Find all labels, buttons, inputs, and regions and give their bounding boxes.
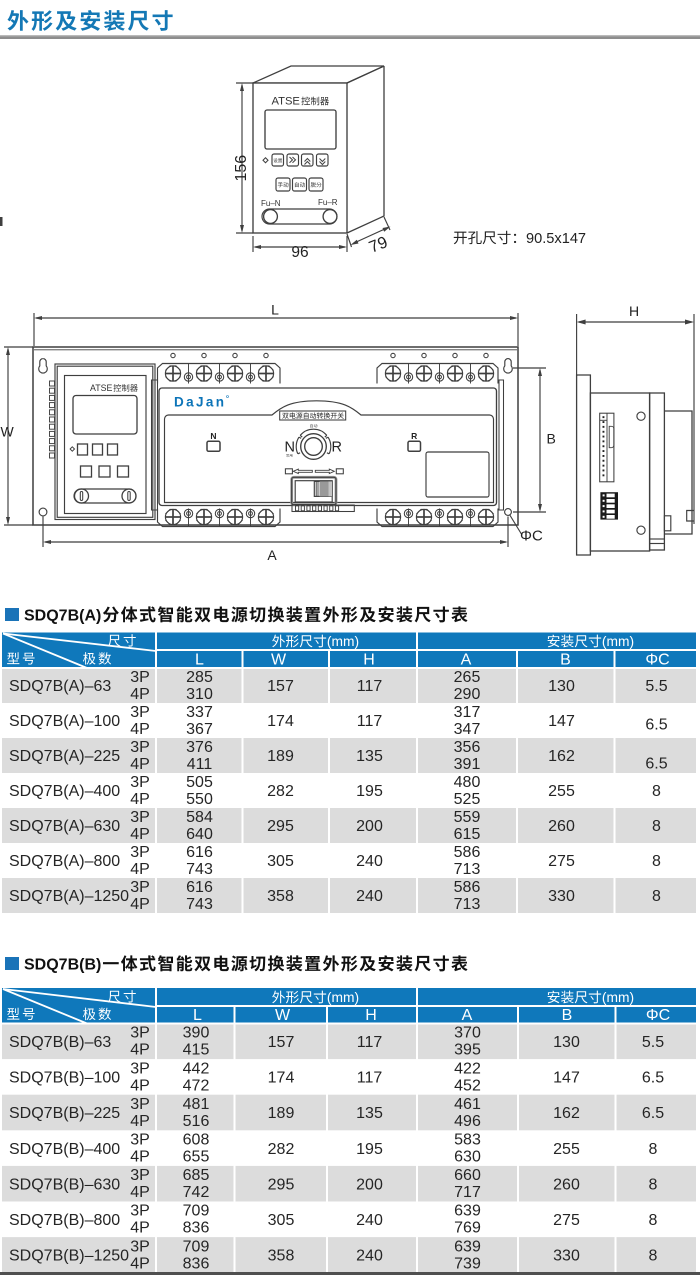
svg-text:255: 255 <box>548 783 575 800</box>
svg-text:616: 616 <box>186 844 213 861</box>
svg-text:4P: 4P <box>130 1255 150 1272</box>
svg-text:6.5: 6.5 <box>645 756 667 773</box>
svg-text:L: L <box>271 302 279 318</box>
svg-text:3P: 3P <box>130 1096 150 1113</box>
svg-text:157: 157 <box>267 678 294 695</box>
svg-text:584: 584 <box>186 809 213 826</box>
svg-text:608: 608 <box>183 1132 210 1149</box>
svg-text:B: B <box>562 1007 573 1024</box>
svg-text:4P: 4P <box>130 1113 150 1130</box>
svg-text:(mm): (mm) <box>327 634 359 649</box>
svg-text:6.5: 6.5 <box>642 1105 664 1122</box>
svg-text:SDQ7B(A)–225: SDQ7B(A)–225 <box>9 748 120 765</box>
svg-text:4P: 4P <box>130 896 150 913</box>
svg-text:586: 586 <box>454 844 481 861</box>
svg-text:W: W <box>1 424 15 440</box>
svg-text:516: 516 <box>183 1113 210 1130</box>
svg-text:415: 415 <box>183 1042 210 1059</box>
svg-text:SDQ7B(A)–800: SDQ7B(A)–800 <box>9 853 120 870</box>
svg-text:H: H <box>629 303 639 319</box>
svg-text:90.5x147: 90.5x147 <box>526 231 586 247</box>
svg-text:586: 586 <box>454 879 481 896</box>
svg-text:358: 358 <box>268 1248 295 1265</box>
svg-text:147: 147 <box>553 1070 580 1087</box>
svg-text:347: 347 <box>454 721 481 738</box>
svg-text:156: 156 <box>233 155 250 182</box>
svg-text:295: 295 <box>268 1176 295 1193</box>
svg-text:SDQ7B(B)–63: SDQ7B(B)–63 <box>9 1034 111 1051</box>
svg-text:135: 135 <box>356 1105 383 1122</box>
svg-text:DaJan: DaJan <box>174 395 224 410</box>
svg-text:4P: 4P <box>130 1184 150 1201</box>
svg-text:162: 162 <box>548 748 575 765</box>
svg-text:660: 660 <box>454 1167 481 1184</box>
svg-text:W: W <box>275 1007 291 1024</box>
svg-text:305: 305 <box>267 853 294 870</box>
svg-text:4P: 4P <box>130 721 150 738</box>
svg-text:275: 275 <box>548 853 575 870</box>
svg-text:8: 8 <box>649 1141 658 1158</box>
svg-text:422: 422 <box>454 1060 481 1077</box>
svg-text:SDQ7B(A)–630: SDQ7B(A)–630 <box>9 818 120 835</box>
svg-text:ATSE: ATSE <box>272 96 300 108</box>
svg-text:290: 290 <box>454 686 481 703</box>
svg-text:117: 117 <box>357 713 383 730</box>
svg-text:481: 481 <box>183 1096 210 1113</box>
svg-text:265: 265 <box>454 669 481 686</box>
svg-text:117: 117 <box>357 678 383 695</box>
svg-text:285: 285 <box>186 669 213 686</box>
svg-text:SDQ7B(B)–630: SDQ7B(B)–630 <box>9 1176 120 1193</box>
svg-text:3P: 3P <box>130 1167 150 1184</box>
svg-text:SDQ7B(A)–1250: SDQ7B(A)–1250 <box>9 888 129 905</box>
svg-text:240: 240 <box>356 853 383 870</box>
svg-text:SDQ7B(B): SDQ7B(B) <box>24 957 101 974</box>
svg-text:240: 240 <box>356 1248 383 1265</box>
svg-text:(mm): (mm) <box>602 990 634 1005</box>
svg-text:4P: 4P <box>130 791 150 808</box>
svg-text:189: 189 <box>268 1105 295 1122</box>
svg-text:174: 174 <box>267 713 294 730</box>
svg-text:4P: 4P <box>130 1077 150 1094</box>
svg-text:L: L <box>193 1007 202 1024</box>
svg-text:240: 240 <box>356 1212 383 1229</box>
svg-text:3P: 3P <box>130 774 150 791</box>
svg-text:717: 717 <box>454 1184 481 1201</box>
svg-text:742: 742 <box>183 1184 210 1201</box>
svg-text:130: 130 <box>548 678 575 695</box>
svg-text:317: 317 <box>454 704 481 721</box>
svg-text:305: 305 <box>268 1212 295 1229</box>
svg-text:W: W <box>271 652 287 669</box>
svg-text:4P: 4P <box>130 756 150 773</box>
svg-text:583: 583 <box>454 1132 481 1149</box>
svg-text:709: 709 <box>183 1238 210 1255</box>
svg-text:240: 240 <box>356 888 383 905</box>
svg-text:640: 640 <box>186 826 213 843</box>
svg-text:R: R <box>332 440 342 456</box>
svg-text:Fu–N: Fu–N <box>261 199 281 208</box>
svg-text:769: 769 <box>454 1220 481 1237</box>
svg-text:8: 8 <box>652 853 661 870</box>
svg-text:SDQ7B(B)–800: SDQ7B(B)–800 <box>9 1212 120 1229</box>
svg-text:A: A <box>462 1007 473 1024</box>
svg-text:525: 525 <box>454 791 481 808</box>
svg-text:200: 200 <box>356 1176 383 1193</box>
svg-text:550: 550 <box>186 791 213 808</box>
svg-text:(mm): (mm) <box>327 990 359 1005</box>
svg-text:195: 195 <box>356 783 383 800</box>
svg-text:R: R <box>411 431 417 441</box>
svg-text:3P: 3P <box>130 1203 150 1220</box>
svg-text:295: 295 <box>267 818 294 835</box>
svg-text:3P: 3P <box>130 704 150 721</box>
svg-text:260: 260 <box>548 818 575 835</box>
svg-text:SDQ7B(B)–225: SDQ7B(B)–225 <box>9 1105 120 1122</box>
svg-text:370: 370 <box>454 1025 481 1042</box>
svg-text:391: 391 <box>454 756 481 773</box>
svg-text:5.5: 5.5 <box>645 678 667 695</box>
svg-text:SDQ7B(B)–100: SDQ7B(B)–100 <box>9 1070 120 1087</box>
svg-text:130: 130 <box>553 1034 580 1051</box>
svg-text:496: 496 <box>454 1113 481 1130</box>
svg-text:472: 472 <box>183 1077 210 1094</box>
svg-text:ΦC: ΦC <box>520 528 543 545</box>
svg-text:836: 836 <box>183 1220 210 1237</box>
svg-text:117: 117 <box>357 1070 383 1087</box>
svg-text:743: 743 <box>186 896 213 913</box>
svg-text:4P: 4P <box>130 861 150 878</box>
svg-text:442: 442 <box>183 1060 210 1077</box>
svg-text:713: 713 <box>454 861 481 878</box>
svg-text:8: 8 <box>649 1176 658 1193</box>
svg-text:630: 630 <box>454 1149 481 1166</box>
svg-text:SDQ7B(B)–400: SDQ7B(B)–400 <box>9 1141 120 1158</box>
svg-text:3P: 3P <box>130 844 150 861</box>
svg-text:5.5: 5.5 <box>642 1034 664 1051</box>
svg-text:615: 615 <box>454 826 481 843</box>
svg-text:ΦC: ΦC <box>645 652 669 669</box>
svg-text:282: 282 <box>267 783 294 800</box>
svg-text:639: 639 <box>454 1203 481 1220</box>
svg-text:452: 452 <box>454 1077 481 1094</box>
svg-text:B: B <box>560 652 571 669</box>
svg-text:3P: 3P <box>130 1238 150 1255</box>
svg-text:390: 390 <box>183 1025 210 1042</box>
svg-text:157: 157 <box>268 1034 295 1051</box>
svg-text:SDQ7B(B)–1250: SDQ7B(B)–1250 <box>9 1248 129 1265</box>
svg-text:4P: 4P <box>130 686 150 703</box>
svg-text:330: 330 <box>553 1248 580 1265</box>
svg-text:282: 282 <box>268 1141 295 1158</box>
svg-text:559: 559 <box>454 809 481 826</box>
svg-text:3P: 3P <box>130 1132 150 1149</box>
svg-text:461: 461 <box>454 1096 481 1113</box>
svg-text:4P: 4P <box>130 1149 150 1166</box>
svg-text:8: 8 <box>652 888 661 905</box>
svg-text:6.5: 6.5 <box>642 1070 664 1087</box>
svg-text:189: 189 <box>267 748 294 765</box>
svg-text:Fu–R: Fu–R <box>318 198 338 207</box>
svg-text:162: 162 <box>553 1105 580 1122</box>
svg-text:SDQ7B(A)–400: SDQ7B(A)–400 <box>9 783 120 800</box>
svg-text:709: 709 <box>183 1203 210 1220</box>
svg-text:8: 8 <box>649 1248 658 1265</box>
svg-text:255: 255 <box>553 1141 580 1158</box>
svg-text:743: 743 <box>186 861 213 878</box>
svg-text:330: 330 <box>548 888 575 905</box>
svg-text:3P: 3P <box>130 1025 150 1042</box>
svg-text:8: 8 <box>652 783 661 800</box>
svg-text:135: 135 <box>356 748 383 765</box>
svg-text:6.5: 6.5 <box>645 717 667 734</box>
svg-text:79: 79 <box>366 233 390 257</box>
svg-text:367: 367 <box>186 721 213 738</box>
svg-text:3P: 3P <box>130 809 150 826</box>
svg-text:376: 376 <box>186 739 213 756</box>
svg-text:A: A <box>461 652 472 669</box>
svg-text:174: 174 <box>268 1070 295 1087</box>
svg-text:ΦC: ΦC <box>646 1007 670 1024</box>
svg-text:3P: 3P <box>130 739 150 756</box>
svg-text:L: L <box>195 652 204 669</box>
svg-text:B: B <box>547 431 556 447</box>
svg-text:337: 337 <box>186 704 213 721</box>
svg-text:8: 8 <box>652 818 661 835</box>
svg-text:N: N <box>210 431 216 441</box>
svg-text:SDQ7B(A): SDQ7B(A) <box>24 608 101 625</box>
svg-text:(mm): (mm) <box>602 634 634 649</box>
svg-text:147: 147 <box>548 713 575 730</box>
svg-text:836: 836 <box>183 1255 210 1272</box>
svg-text:356: 356 <box>454 739 481 756</box>
svg-text:117: 117 <box>357 1034 383 1051</box>
svg-text:358: 358 <box>267 888 294 905</box>
svg-text:639: 639 <box>454 1238 481 1255</box>
svg-text:ATSE: ATSE <box>90 383 112 393</box>
svg-text:4P: 4P <box>130 1220 150 1237</box>
svg-text:3P: 3P <box>130 1060 150 1077</box>
svg-text:310: 310 <box>186 686 213 703</box>
svg-text:N: N <box>285 440 295 456</box>
svg-text:4P: 4P <box>130 826 150 843</box>
svg-text:H: H <box>365 1007 377 1024</box>
svg-text:739: 739 <box>454 1255 481 1272</box>
svg-text:260: 260 <box>553 1176 580 1193</box>
svg-text:616: 616 <box>186 879 213 896</box>
svg-text:A: A <box>267 547 277 563</box>
svg-text:96: 96 <box>291 244 308 261</box>
svg-text:195: 195 <box>356 1141 383 1158</box>
svg-text:SDQ7B(A)–100: SDQ7B(A)–100 <box>9 713 120 730</box>
svg-text:713: 713 <box>454 896 481 913</box>
svg-text:395: 395 <box>454 1042 481 1059</box>
svg-text:411: 411 <box>187 756 213 773</box>
svg-text:655: 655 <box>183 1149 210 1166</box>
svg-text:8: 8 <box>649 1212 658 1229</box>
svg-text:200: 200 <box>356 818 383 835</box>
svg-text:3P: 3P <box>130 879 150 896</box>
svg-text:275: 275 <box>553 1212 580 1229</box>
svg-text:SDQ7B(A)–63: SDQ7B(A)–63 <box>9 678 111 695</box>
svg-text:685: 685 <box>183 1167 210 1184</box>
svg-text:3P: 3P <box>130 669 150 686</box>
svg-text:4P: 4P <box>130 1042 150 1059</box>
svg-text:H: H <box>363 652 375 669</box>
svg-text:505: 505 <box>186 774 213 791</box>
svg-text:480: 480 <box>454 774 481 791</box>
